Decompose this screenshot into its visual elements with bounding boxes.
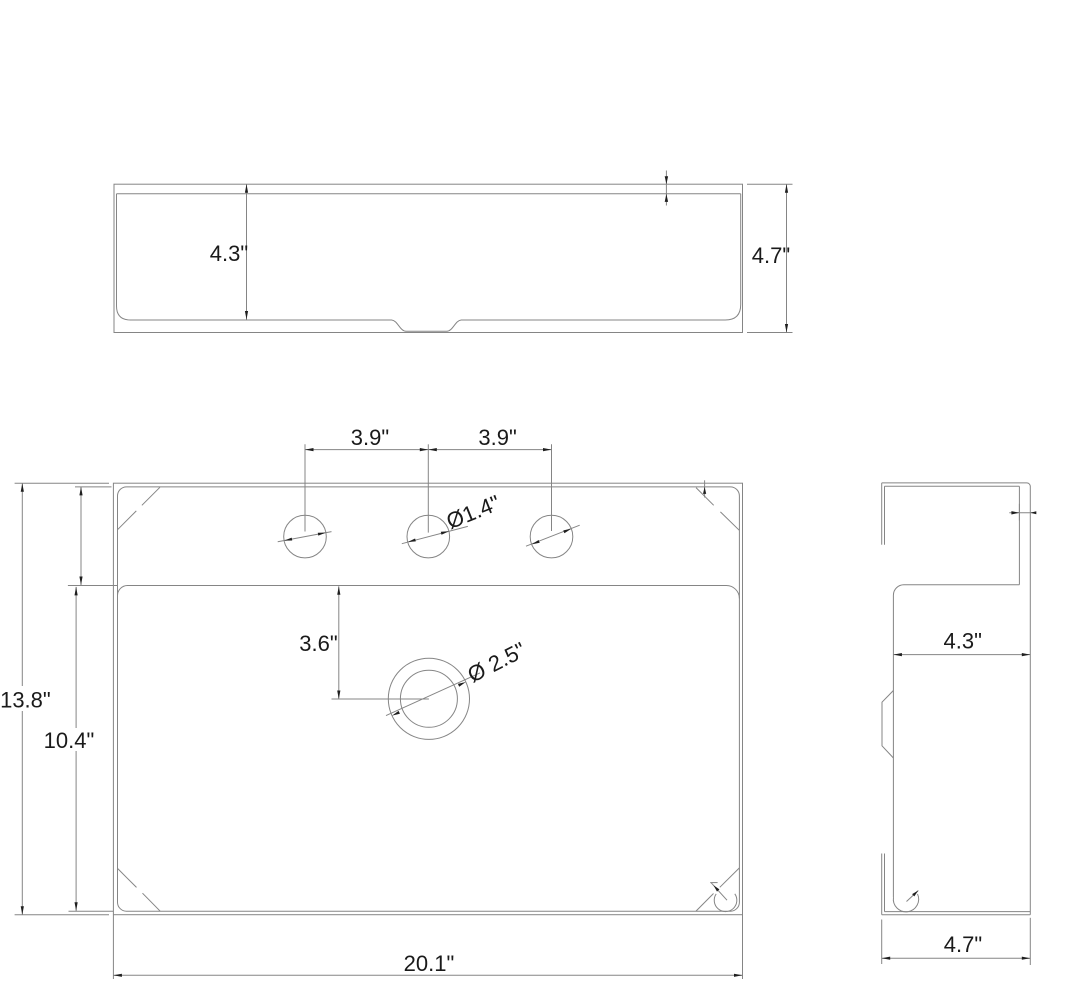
svg-text:3.9": 3.9" xyxy=(478,425,516,450)
svg-text:3.9": 3.9" xyxy=(351,425,389,450)
svg-text:4.3": 4.3" xyxy=(210,241,248,266)
svg-text:20.1": 20.1" xyxy=(404,951,455,976)
svg-text:4.7": 4.7" xyxy=(944,932,982,957)
svg-text:10.4": 10.4" xyxy=(44,728,95,753)
svg-text:13.8": 13.8" xyxy=(0,688,51,713)
svg-text:4.7": 4.7" xyxy=(752,243,790,268)
svg-text:3.6": 3.6" xyxy=(299,631,337,656)
svg-text:4.3": 4.3" xyxy=(943,629,981,654)
